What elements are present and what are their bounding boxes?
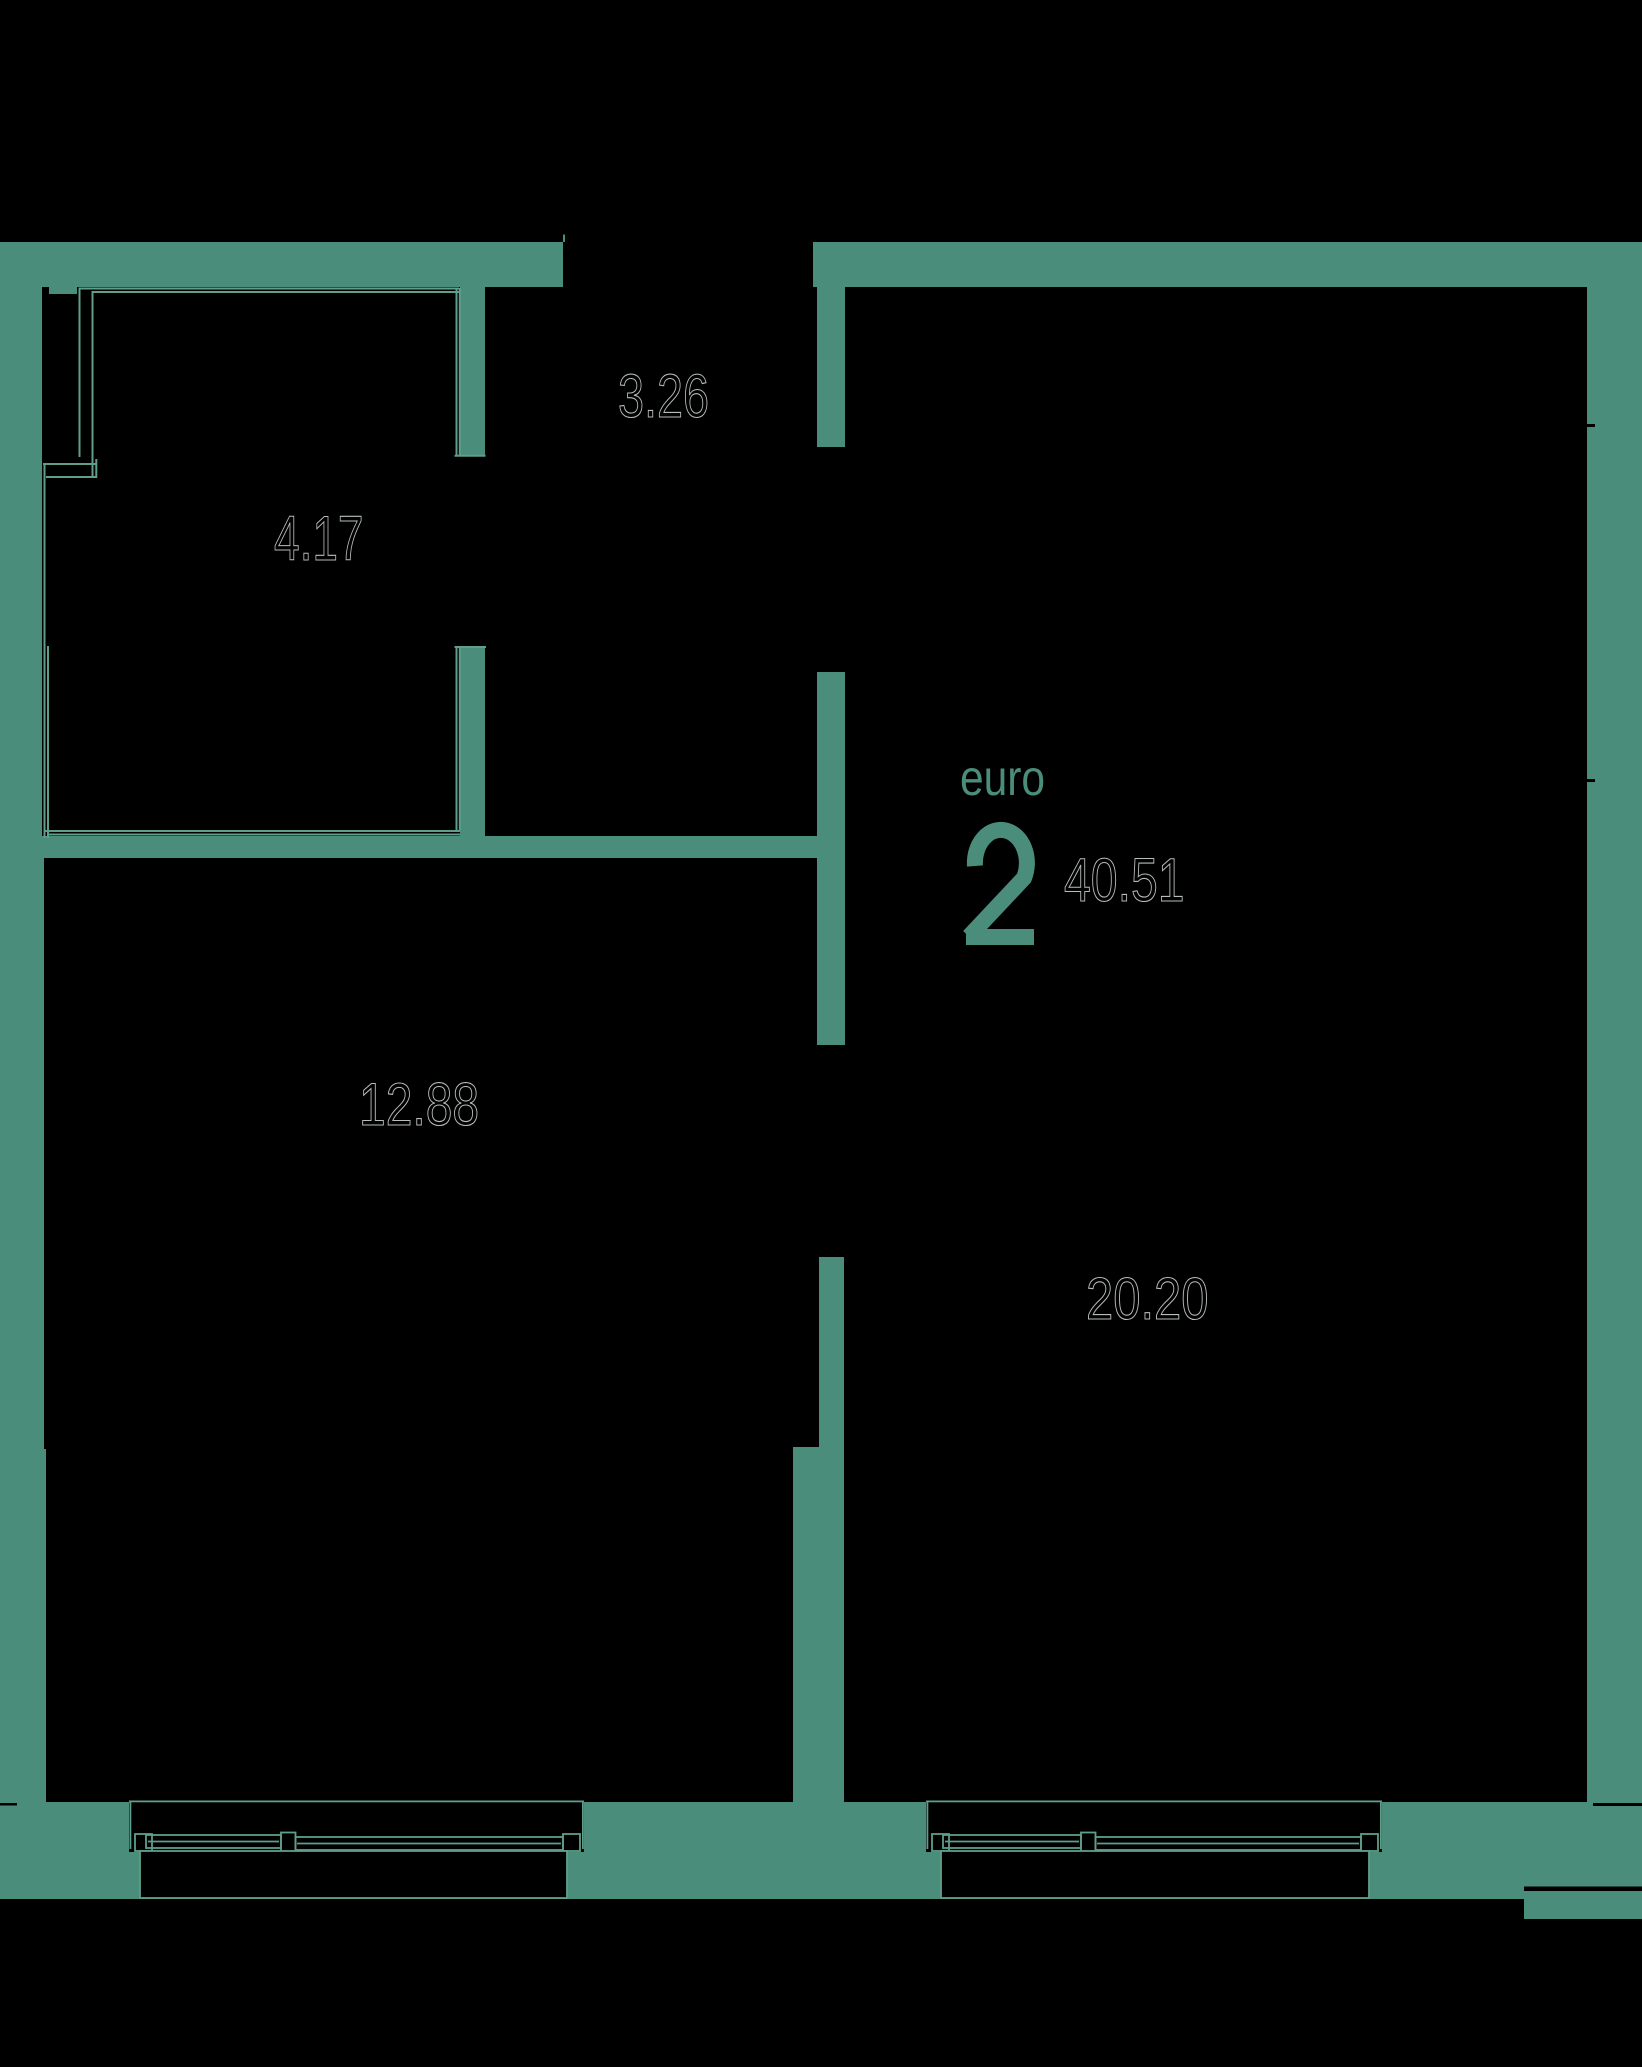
svg-text:3.26: 3.26 [618,362,709,430]
svg-text:12.88: 12.88 [359,1071,479,1138]
svg-text:euro: euro [960,750,1045,806]
svg-text:20.20: 20.20 [1086,1267,1209,1332]
svg-text:4.17: 4.17 [274,503,363,574]
svg-text:40.51: 40.51 [1064,846,1185,915]
